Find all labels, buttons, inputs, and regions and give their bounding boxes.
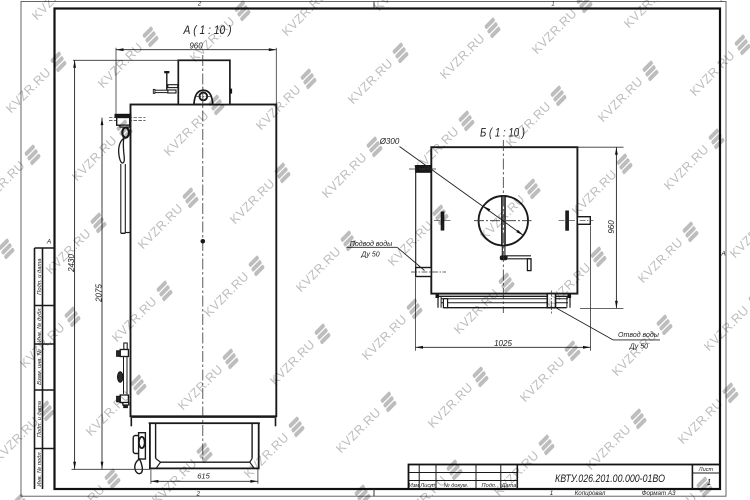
svg-text:Лист: Лист [698,467,714,473]
svg-text:960: 960 [607,220,616,234]
svg-text:Подвод воды: Подвод воды [350,240,393,248]
svg-text:Ø300: Ø300 [379,137,400,146]
svg-text:615: 615 [197,471,210,480]
svg-text:2075: 2075 [94,284,103,303]
svg-text:Инв. № подл.: Инв. № подл. [37,451,43,487]
svg-text:А: А [46,239,51,246]
svg-text:1025: 1025 [494,339,512,348]
svg-text:2: 2 [197,1,202,7]
svg-text:Изм: Изм [409,483,420,489]
svg-text:1: 1 [550,490,553,497]
svg-text:Подп. и дата: Подп. и дата [37,258,43,295]
svg-text:2: 2 [196,491,201,497]
svg-text:КВТУ.026.201.00.000-01ВО: КВТУ.026.201.00.000-01ВО [555,473,665,485]
svg-text:Копировал: Копировал [575,490,606,497]
svg-text:Формат А3: Формат А3 [642,490,676,497]
svg-text:Ду 50: Ду 50 [360,252,379,259]
svg-text:1: 1 [551,2,554,8]
svg-text:А: А [720,251,725,258]
